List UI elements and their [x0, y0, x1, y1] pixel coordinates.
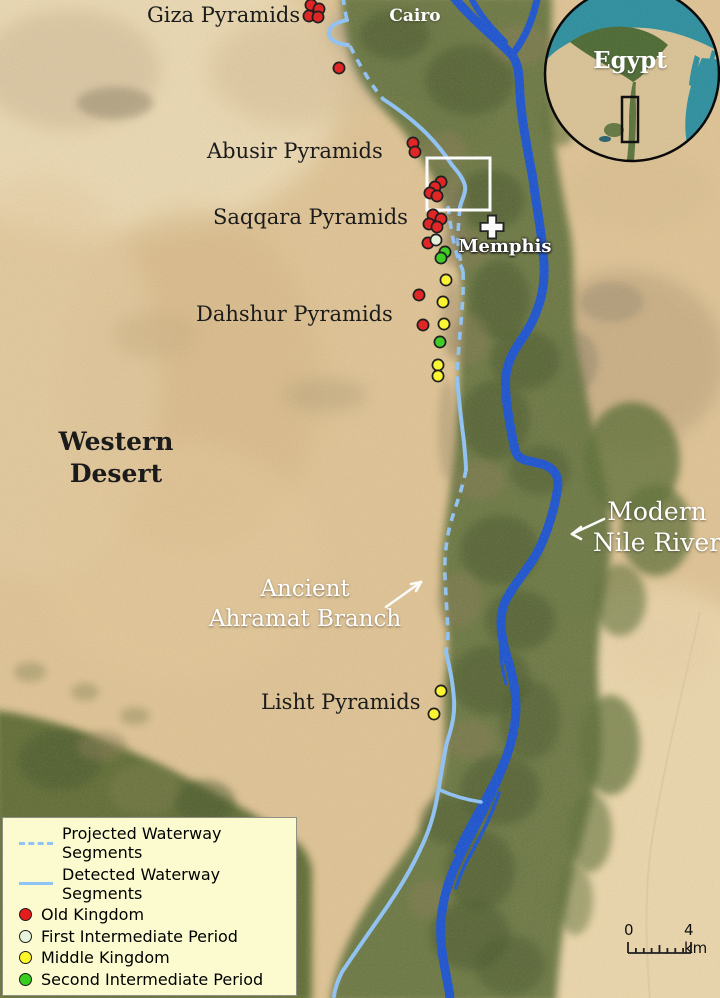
label-saqqara-pyramids: Saqqara Pyramids — [213, 205, 408, 229]
label-giza-pyramids: Giza Pyramids — [147, 3, 300, 27]
first-intermediate-dot-icon — [19, 930, 32, 943]
dashed-line-swatch-icon — [19, 842, 53, 845]
legend-item-label: Old Kingdom — [41, 905, 144, 924]
label-abusir-pyramids: Abusir Pyramids — [207, 139, 383, 163]
inset-label-egypt: Egypt — [593, 47, 667, 74]
label-cairo: Cairo — [389, 6, 440, 26]
scale-start-label: 0 — [624, 921, 634, 939]
solid-line-swatch-icon — [19, 882, 53, 885]
second-intermediate-dot-icon — [19, 973, 32, 986]
legend-item-label: Projected Waterway Segments — [62, 824, 292, 862]
label-ancient-ahramat-branch: Ancient Ahramat Branch — [209, 574, 401, 634]
legend-item-detected-waterway: Detected Waterway Segments — [7, 865, 292, 903]
legend-item-label: Middle Kingdom — [41, 948, 170, 967]
label-memphis: Memphis — [458, 236, 551, 257]
old-kingdom-dot-icon — [19, 908, 32, 921]
scale-end-label: 4 km — [684, 921, 720, 957]
legend-item-label: First Intermediate Period — [41, 927, 238, 946]
label-western-desert: Western Desert — [59, 426, 174, 490]
legend-item-old-kingdom: Old Kingdom — [7, 905, 292, 924]
legend-item-label: Detected Waterway Segments — [62, 865, 292, 903]
satellite-map: Cairo Giza Pyramids Abusir Pyramids Saqq… — [0, 0, 720, 998]
label-lisht-pyramids: Lisht Pyramids — [261, 690, 420, 714]
legend-item-first-intermediate: First Intermediate Period — [7, 927, 292, 946]
legend-item-middle-kingdom: Middle Kingdom — [7, 948, 292, 967]
legend-item-second-intermediate: Second Intermediate Period — [7, 970, 292, 989]
label-modern-nile-river: Modern Nile River — [593, 496, 720, 558]
legend-item-projected-waterway: Projected Waterway Segments — [7, 824, 292, 862]
label-dahshur-pyramids: Dahshur Pyramids — [196, 302, 393, 326]
legend: Projected Waterway Segments Detected Wat… — [2, 817, 297, 996]
legend-item-label: Second Intermediate Period — [41, 970, 263, 989]
middle-kingdom-dot-icon — [19, 951, 32, 964]
